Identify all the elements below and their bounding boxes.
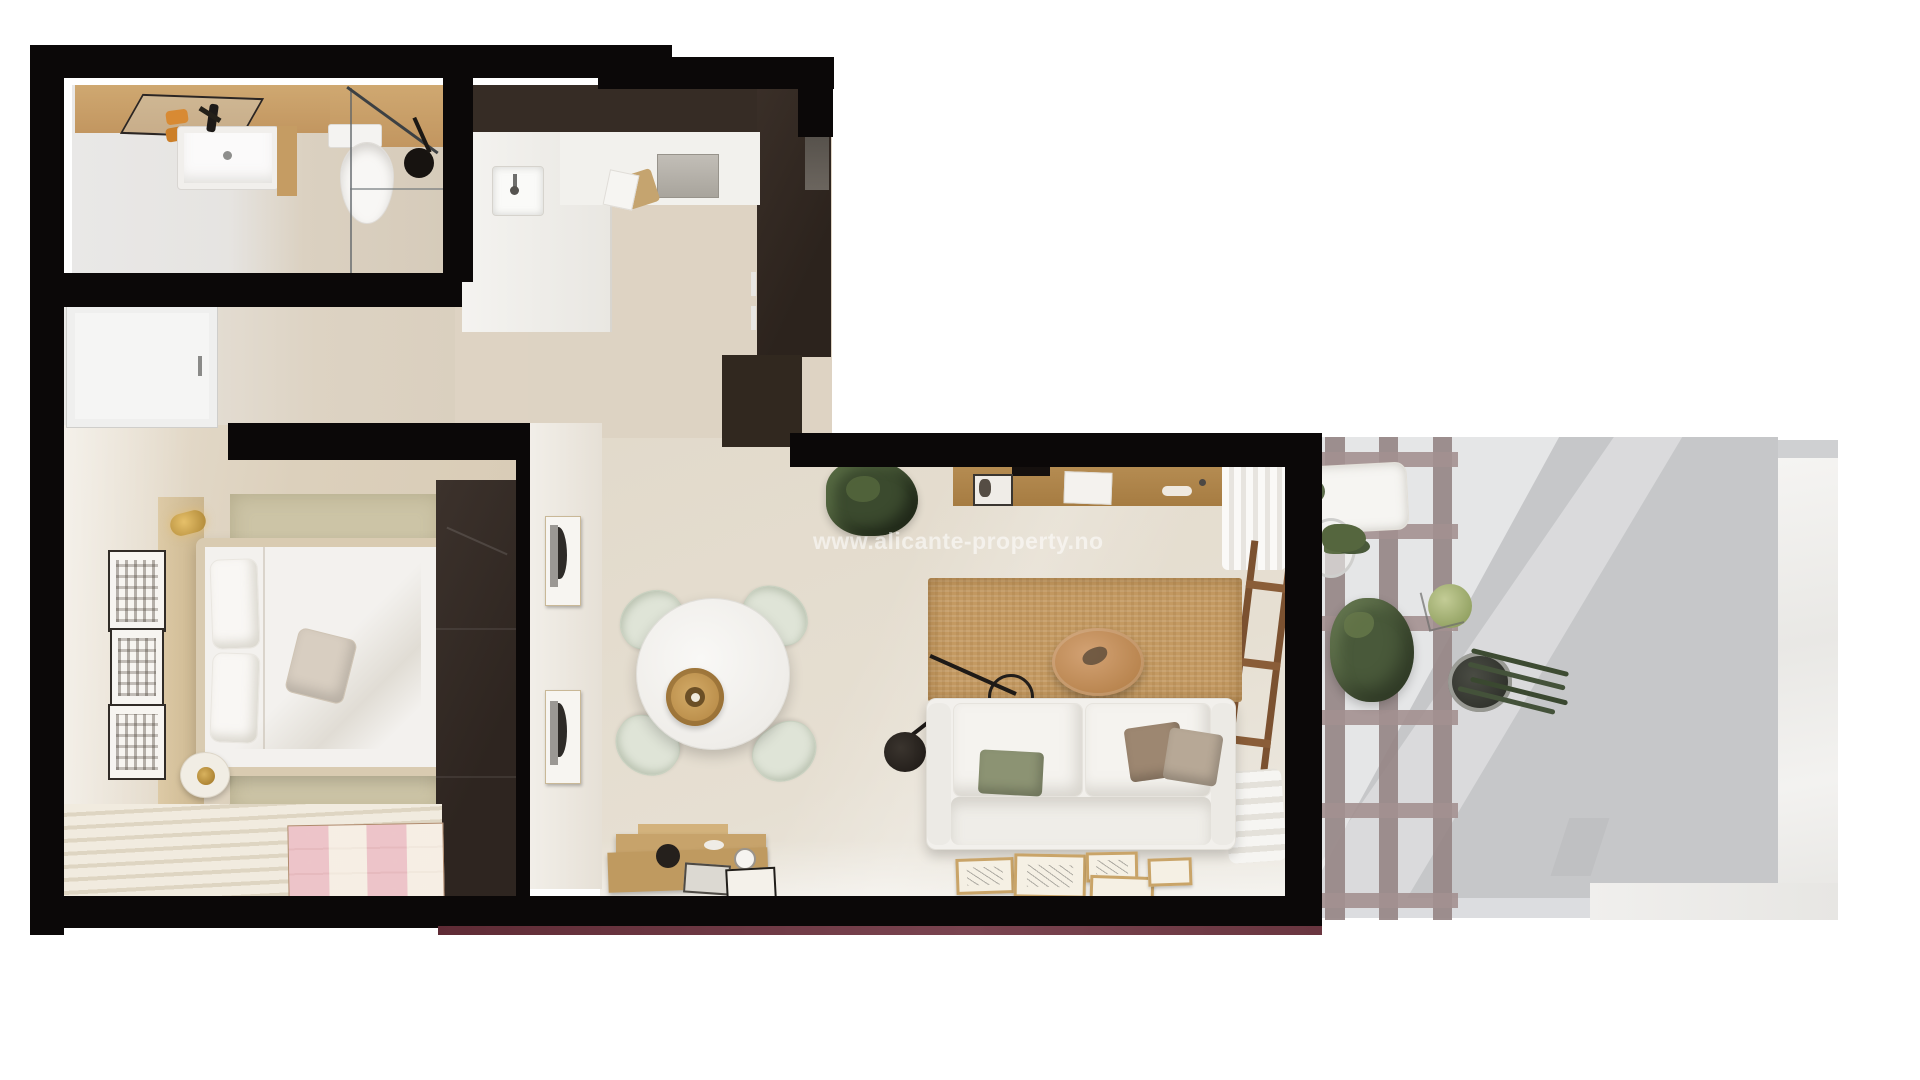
shelf-white-card — [1063, 471, 1112, 505]
clock — [734, 848, 756, 870]
wardrobe — [436, 480, 518, 900]
shelf-photo-frame — [973, 474, 1013, 506]
shelf-knob — [1199, 479, 1206, 486]
abstract-art-stripe — [550, 525, 558, 587]
sideboard — [608, 824, 784, 896]
wardrobe-seam — [436, 776, 518, 778]
green-cushion — [978, 749, 1044, 796]
leaning-frame — [955, 857, 1014, 895]
wardrobe-highlight — [446, 527, 507, 556]
shower-glass-mid — [350, 188, 445, 190]
wall-top-bathroom — [30, 45, 672, 78]
sofa-back — [951, 797, 1211, 845]
wall-kitchen-corner — [798, 57, 833, 137]
bedroom-wall-frame — [108, 550, 166, 632]
photo-figure — [979, 479, 991, 497]
sofa — [926, 698, 1236, 850]
wall-left — [30, 45, 64, 935]
large-plant — [1330, 598, 1414, 702]
vanity-wood-side — [277, 126, 297, 196]
entry-door — [66, 304, 218, 428]
frame-art — [116, 714, 158, 770]
sofa-arm-left — [927, 703, 951, 845]
entry-door-handle — [198, 356, 202, 376]
rattan-pendant-lamp — [666, 668, 724, 726]
double-bed — [196, 538, 448, 776]
living-plant-tips — [846, 476, 880, 502]
kitchen-faucet-base — [510, 186, 519, 195]
bedside-lamp — [180, 752, 230, 798]
shelf-tray — [1162, 486, 1192, 496]
terrace-marble-right — [1778, 458, 1838, 920]
wall-bottom — [30, 896, 1322, 928]
wall-right — [1285, 433, 1322, 920]
frame-sketch — [1096, 860, 1128, 875]
black-vase — [656, 844, 680, 868]
taupe-cushion — [1162, 727, 1223, 787]
living-white-wall-band — [528, 423, 602, 889]
wall-bathroom-right — [443, 57, 473, 282]
pergola-beam-horizontal — [1322, 893, 1458, 908]
shower-glass-panel — [350, 88, 352, 284]
cooktop — [657, 154, 719, 198]
arc-lamp-base — [884, 732, 926, 772]
bedroom-wall-frame — [108, 704, 166, 780]
pergola-beam-horizontal — [1322, 710, 1458, 725]
leaning-frame — [1148, 857, 1193, 887]
pendant-bulb — [691, 693, 700, 702]
wall-bathroom-bottom — [30, 273, 462, 307]
cabinet-handle — [751, 272, 756, 296]
frame-sketch — [1027, 864, 1074, 888]
terrace-marble-bottom — [1590, 883, 1838, 920]
wardrobe-seam — [436, 628, 518, 630]
basket-plant-leaves — [1322, 524, 1366, 552]
wall-bedroom-right — [516, 423, 530, 903]
watermark: www.alicante-property.no — [813, 528, 1104, 555]
wall-artwork — [545, 516, 581, 606]
floor-plan-render: www.alicante-property.no — [0, 0, 1920, 1080]
pink-check-runner — [287, 823, 444, 902]
leaning-frame — [1014, 853, 1087, 898]
white-dish — [704, 840, 724, 850]
wall-artwork — [545, 690, 581, 784]
frame-sketch — [966, 866, 1003, 885]
leaning-photo — [683, 862, 731, 895]
abstract-art-stripe — [550, 701, 558, 765]
cactus-pot — [1448, 652, 1512, 712]
pergola-beam-horizontal — [1322, 803, 1458, 818]
frame-art — [116, 560, 158, 622]
bedroom-wall-frame — [110, 628, 164, 706]
kitchen-oven — [805, 132, 829, 190]
sink-drain — [223, 151, 232, 160]
frame-art — [118, 638, 156, 696]
kitchen-upper-cabinets — [455, 85, 805, 135]
cabinet-handle — [751, 306, 756, 330]
bottom-maroon-edge — [438, 926, 1322, 935]
shower-head — [404, 148, 434, 178]
wall-living-top — [790, 433, 1310, 467]
lamp-shade-center — [197, 767, 215, 785]
wall-bedroom-top — [228, 423, 528, 460]
